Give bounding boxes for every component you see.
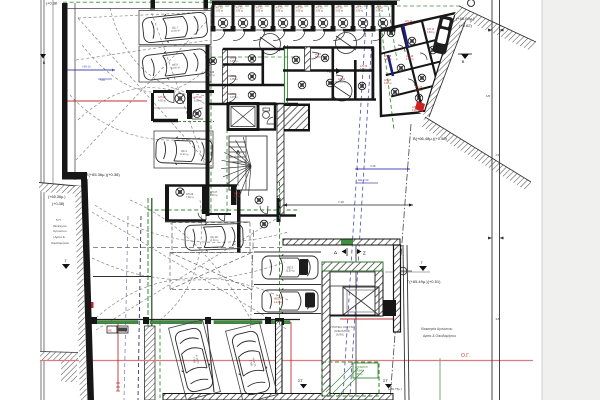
svg-text:3,9 τμ: 3,9 τμ (234, 195, 241, 198)
svg-text:3,95 τμ: 3,95 τμ (256, 10, 264, 13)
svg-text:Γ: Γ (65, 259, 67, 263)
svg-text:4,90 τμ: 4,90 τμ (427, 31, 435, 34)
svg-text:3,95 τμ: 3,95 τμ (316, 10, 324, 13)
svg-text:4,90 τμ: 4,90 τμ (384, 82, 392, 85)
svg-text:ΣΤ: ΣΤ (298, 378, 303, 383)
svg-text:3,95 τμ: 3,95 τμ (356, 10, 364, 13)
svg-text:Γ(+65.49μ.)(+0.51): Γ(+65.49μ.)(+0.51) (407, 279, 441, 284)
svg-text:(+0.38: (+0.38 (46, 2, 57, 6)
svg-text:Αγνώστου: Αγνώστου (53, 229, 67, 233)
svg-text:Δ: Δ (334, 250, 337, 255)
svg-text:3,95 τμ: 3,95 τμ (276, 10, 284, 13)
svg-text:1/6: 1/6 (486, 94, 491, 98)
svg-text:Γ: Γ (421, 261, 423, 265)
svg-text:(+65.36μ.): (+65.36μ.) (48, 195, 66, 199)
svg-text:(+66.60μ.): (+66.60μ.) (456, 16, 475, 21)
svg-text:Αρπα & Οικοδομήσου: Αρπα & Οικοδομήσου (423, 334, 456, 338)
svg-text:ΣΤ: ΣΤ (383, 378, 388, 383)
svg-text:3,95 τμ: 3,95 τμ (216, 10, 224, 13)
svg-text:3,95 τμ: 3,95 τμ (296, 10, 304, 13)
svg-text:(+65.75μ.): (+65.75μ.) (388, 387, 402, 391)
svg-text:7.10: 7.10 (338, 200, 344, 204)
svg-text:5,90 τμ: 5,90 τμ (360, 68, 368, 71)
svg-text:3,95 τμ: 3,95 τμ (236, 10, 244, 13)
svg-text:Ζ(+65.36μ.)(+0.38): Ζ(+65.36μ.)(+0.38) (86, 172, 120, 177)
svg-text:12,50 τμ: 12,50 τμ (286, 270, 296, 273)
svg-text:14,0 τμ: 14,0 τμ (274, 300, 283, 304)
svg-text:B: B (462, 59, 465, 64)
svg-text:4,50 τμ: 4,50 τμ (158, 99, 167, 102)
svg-text:4.38: 4.38 (370, 164, 376, 168)
svg-text:6,50 τμ: 6,50 τμ (194, 99, 203, 102)
svg-text:1.5: 1.5 (496, 153, 500, 157)
svg-text:+58.10: +58.10 (82, 65, 91, 69)
svg-text:(ΚΛΙΜ.): (ΚΛΙΜ.) (336, 333, 344, 336)
svg-text:ΥΠΟΓΕΙΑ ΟΔΕΥΣΗ: ΥΠΟΓΕΙΑ ΟΔΕΥΣΗ (330, 325, 354, 329)
svg-text:Ιδιοκτησία Αγνώστου: Ιδιοκτησία Αγνώστου (421, 327, 452, 331)
svg-text:12,50 τμ: 12,50 τμ (179, 153, 189, 156)
svg-text:3,95 τμ: 3,95 τμ (336, 10, 344, 13)
svg-text:3,95 τμ: 3,95 τμ (376, 10, 384, 13)
svg-text:6,35 τμ: 6,35 τμ (207, 74, 215, 77)
svg-text:ΜΕ 2.30: ΜΕ 2.30 (358, 178, 369, 182)
svg-text:(ΑΝΕΛΚ/ΡΑΣ): (ΑΝΕΛΚ/ΡΑΣ) (334, 329, 350, 333)
svg-text:4,90 τμ: 4,90 τμ (415, 89, 423, 92)
svg-text:0,90 τμ: 0,90 τμ (210, 194, 218, 197)
svg-text:7,90 τμ: 7,90 τμ (186, 196, 194, 199)
svg-text:3,97 τμ: 3,97 τμ (230, 96, 238, 99)
svg-text:ΘΕ: ΘΕ (108, 329, 112, 333)
svg-text:4,90 τμ: 4,90 τμ (405, 23, 413, 26)
svg-text:Β(+66.48μ.)(+0.50): Β(+66.48μ.)(+0.50) (413, 136, 448, 141)
svg-text:4,90 τμ: 4,90 τμ (384, 58, 392, 61)
svg-text:(+0.38): (+0.38) (52, 202, 65, 206)
svg-text:3.8: 3.8 (496, 317, 500, 321)
svg-text:4,90 τμ: 4,90 τμ (406, 58, 414, 61)
svg-text:Ο.Γ.: Ο.Γ. (461, 353, 470, 359)
svg-text:(+0.62): (+0.62) (459, 23, 472, 28)
svg-text:9,90 τμ: 9,90 τμ (355, 373, 363, 376)
svg-text:5.60: 5.60 (100, 78, 106, 82)
svg-text:| Αρπα &: | Αρπα & (53, 235, 65, 239)
svg-text:Ιδιοκτησία: Ιδιοκτησία (53, 224, 67, 228)
svg-text:Z: Z (363, 251, 366, 256)
svg-text:3,95 τμ: 3,95 τμ (230, 78, 238, 81)
svg-text:12,50 τμ: 12,50 τμ (210, 239, 220, 242)
svg-text:ΑΠ.29: ΑΠ.29 (194, 95, 202, 99)
svg-text:5 Π: 5 Π (56, 218, 61, 222)
svg-text:Οικοδομήσου: Οικοδομήσου (51, 241, 69, 245)
